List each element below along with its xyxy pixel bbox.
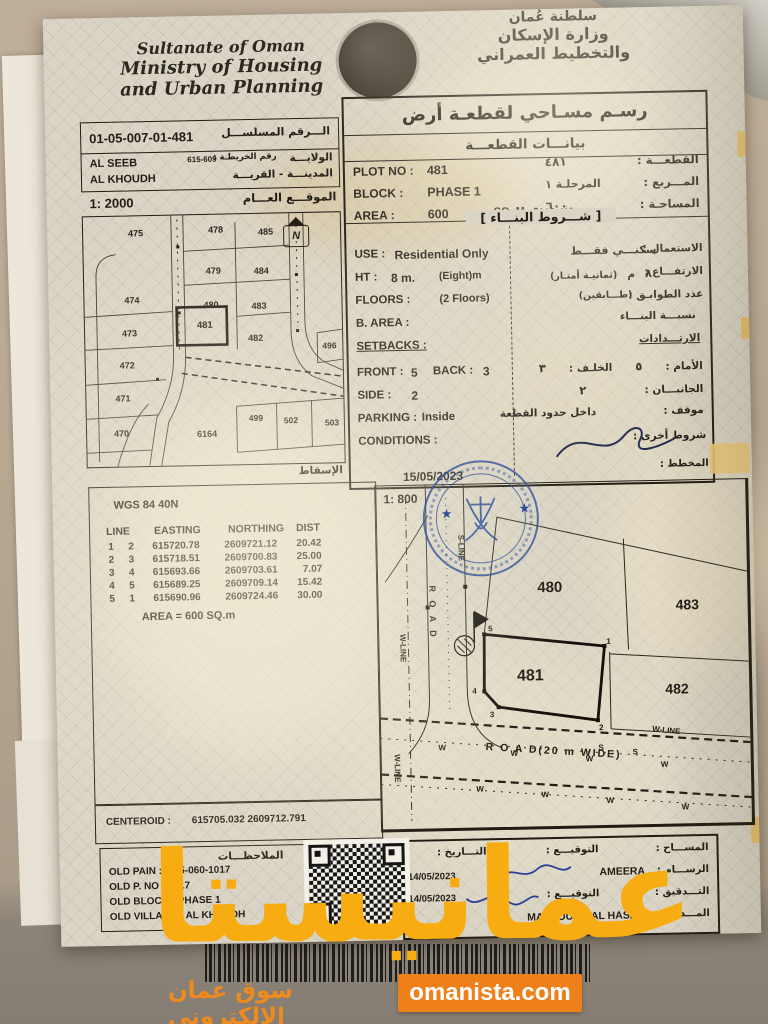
- map-plot-number: 6164: [197, 429, 217, 439]
- header-ar-line-3: والتخطيط العمراني: [458, 42, 648, 65]
- projection-label: الإسقاط: [297, 464, 343, 477]
- use-value: Residential Only: [394, 246, 488, 262]
- plot-no-value: 481: [427, 163, 448, 177]
- national-emblem-stamp: [338, 22, 418, 100]
- coords-col-easting: EASTING: [154, 524, 201, 537]
- back-label: BACK :: [433, 365, 473, 378]
- diagram-plot-482: 482: [665, 680, 689, 696]
- side-value: 2: [411, 389, 418, 403]
- plot-data-panel: رسـم مسـاحي لقطعـة أرض بيانـــات القطعــ…: [341, 90, 715, 490]
- map-plot-number: 479: [206, 266, 221, 276]
- coords-cell: 2: [109, 555, 115, 566]
- ar-height-note: (ثمانيـة أمتـار): [550, 270, 617, 282]
- coords-cell: 4: [109, 581, 115, 592]
- ar-side-value: ٢: [579, 383, 586, 397]
- corner-point-2: 2: [599, 723, 604, 732]
- map-plot-number: 502: [284, 415, 298, 425]
- side-label: SIDE :: [357, 389, 391, 402]
- block-label: BLOCK :: [353, 186, 403, 201]
- map-plot-number: 475: [128, 228, 143, 238]
- ar-floors-label: عدد الطوابـق :: [628, 288, 703, 302]
- omanista-site-badge: omanista.com: [398, 974, 582, 1012]
- w-marker: W: [606, 796, 614, 805]
- map-plot-number: 484: [254, 266, 269, 276]
- ar-block-label: المـــربع :: [643, 174, 699, 189]
- omanista-watermark-text: عمانيستا: [139, 833, 705, 959]
- photo-of-land-survey-document: Sultanate of Oman Ministry of Housing an…: [0, 0, 768, 1024]
- coords-col-line: LINE: [106, 525, 130, 537]
- coords-cell: 1: [108, 542, 114, 553]
- overview-map-1-2000: 475 478 485 479 484 474 480 483 473 481 …: [82, 211, 346, 468]
- w-line-label: W-LINE: [398, 634, 408, 662]
- parking-value: Inside: [422, 411, 455, 424]
- coords-cell: 5: [129, 580, 135, 591]
- map-plot-number: 470: [114, 428, 129, 438]
- ar-height-label: الارتفـــاع :: [644, 265, 703, 278]
- w-marker: W: [438, 743, 446, 752]
- height-note: (Eight)m: [439, 269, 482, 282]
- diagram-plot-480: 480: [537, 579, 562, 596]
- map-plot-number: 503: [325, 417, 339, 427]
- sticky-tab: [741, 317, 749, 339]
- sticky-tab: [737, 131, 746, 157]
- coords-col-dist: DIST: [296, 522, 320, 534]
- ar-block-value: المرحلـة ١: [545, 177, 601, 191]
- map-plot-number: 474: [124, 295, 139, 305]
- coords-cell: 615689.25: [153, 579, 200, 591]
- stamp-star-right: ★: [519, 501, 531, 516]
- floors-label: FLOORS :: [355, 294, 410, 307]
- diagram-plot-481-subject: 481: [517, 667, 544, 686]
- overview-map-scale: 1: 2000: [89, 195, 133, 211]
- map-plot-number: 482: [248, 333, 263, 343]
- ar-front-label: الأمام :: [665, 360, 703, 373]
- site-location-label: الموقـــع العـــام: [236, 189, 336, 205]
- map-plot-number-subject: 481: [197, 320, 213, 331]
- coords-cell: 2609700.83: [225, 552, 278, 564]
- approval-signature: [550, 414, 683, 469]
- coords-cell: 2: [128, 541, 134, 552]
- serial-number-value: 01-05-007-01-481: [89, 129, 193, 146]
- map-plot-number: 499: [249, 413, 263, 423]
- coords-cell: 15.42: [297, 577, 322, 589]
- parking-label: PARKING :: [358, 412, 417, 425]
- coords-cell: 615720.78: [152, 540, 199, 552]
- town-label: المدينـــة - القريـــة: [232, 167, 333, 181]
- ar-side-label: الجانبـــان :: [644, 383, 703, 396]
- town-value: AL KHOUDH: [90, 173, 156, 186]
- coords-col-northing: NORTHING: [228, 522, 284, 535]
- coords-area-total: AREA = 600 SQ.m: [142, 609, 236, 623]
- map-plot-number: 496: [322, 340, 336, 350]
- ministry-header-english: Sultanate of Oman Ministry of Housing an…: [98, 35, 344, 101]
- ar-setbacks-label: الارتـــدادات: [639, 332, 701, 345]
- ar-height-value: ٨: [645, 266, 652, 280]
- map-plot-number: 478: [208, 225, 223, 235]
- official-blue-stamp: ★ ★: [422, 459, 540, 577]
- coords-cell: 2609703.61: [225, 565, 278, 577]
- map-number-value: 615-609: [187, 155, 217, 165]
- coords-cell: 2609721.12: [224, 539, 277, 551]
- coords-cell: 2609709.14: [225, 578, 278, 590]
- ar-back-label: الخلـف :: [569, 362, 613, 375]
- front-label: FRONT :: [357, 366, 404, 379]
- coords-cell: 615693.66: [153, 566, 200, 578]
- header-line-3: and Urban Planning: [99, 75, 344, 101]
- map-number-label: رقم الخريطـة :: [213, 151, 277, 162]
- coords-cell: 20.42: [296, 538, 321, 550]
- serial-number-label: الـــرقم المسلســـل: [221, 124, 330, 139]
- map-plot-number: 480: [203, 300, 218, 310]
- map-plot-number: 473: [122, 328, 137, 338]
- area-label: AREA :: [354, 208, 395, 223]
- setbacks-label: SETBACKS :: [356, 339, 427, 352]
- coords-cell: 4: [129, 567, 135, 578]
- area-value: 600: [428, 207, 449, 221]
- north-letter: N: [292, 230, 300, 242]
- coords-cell: 2609724.46: [225, 591, 278, 603]
- north-arrow-icon: N: [283, 225, 309, 248]
- ar-area-label: المساحـة :: [640, 196, 700, 211]
- ar-use-value: سكنـــي فقـــط: [531, 243, 656, 259]
- coords-cell: 3: [129, 554, 135, 565]
- map-plot-number: 483: [251, 301, 266, 311]
- serial-location-box: 01-05-007-01-481 الـــرقم المسلســـل رقم…: [80, 117, 340, 192]
- coords-cell: 5: [109, 594, 115, 605]
- ar-back-value: ٣: [539, 361, 546, 375]
- coords-cell: 3: [109, 568, 115, 579]
- s-marker: S: [632, 747, 638, 756]
- coords-cell: 1: [129, 593, 135, 604]
- front-value: 5: [411, 366, 418, 380]
- stamp-star-left: ★: [441, 507, 453, 522]
- road-vertical-label: R O A D: [427, 585, 438, 640]
- w-marker: W: [541, 790, 549, 799]
- w-marker: W: [476, 784, 484, 793]
- w-marker: W: [661, 760, 669, 769]
- corner-point-1: 1: [606, 637, 611, 646]
- wilaya-label: الولايـــة: [289, 151, 332, 164]
- back-value: 3: [483, 364, 490, 378]
- ar-front-value: ٥: [635, 359, 642, 373]
- coords-cell: 7.07: [303, 564, 323, 575]
- map-plot-number: 471: [115, 393, 130, 403]
- document-title: رسـم مسـاحي لقطعـة أرض: [402, 100, 648, 126]
- coords-cell: 25.00: [296, 551, 321, 563]
- floors-value: (2 Floors): [439, 292, 489, 305]
- coords-cell: 615718.51: [153, 553, 200, 565]
- ministry-header-arabic: سلطنة عُمان وزارة الإسكان والتخطيط العمر…: [458, 7, 649, 65]
- ar-floors-note: (طـــابقين): [532, 289, 632, 302]
- wilaya-value: AL SEEB: [90, 157, 138, 170]
- sticky-tab-plan: [709, 443, 750, 474]
- conditions-label: CONDITIONS :: [358, 434, 437, 448]
- coordinates-panel: WGS 84 40N LINE EASTING NORTHING DIST 1 …: [88, 482, 382, 807]
- w-marker: W: [682, 802, 690, 811]
- ar-built-area-label: نسبـــة البنـــاء: [620, 309, 696, 323]
- plot-no-label: PLOT NO :: [353, 164, 414, 179]
- omanista-tagline: سوق عمان الإلكتروني: [168, 978, 390, 1024]
- corner-point-5: 5: [488, 624, 493, 633]
- building-conditions-header: [ شـــروط البنـــاء ]: [466, 208, 616, 226]
- plot-data-subtitle: بيانـــات القطعـــة: [465, 135, 585, 153]
- block-value: PHASE 1: [427, 184, 481, 199]
- map-plot-number: 485: [258, 227, 273, 237]
- built-area-label: B. AREA :: [356, 317, 410, 330]
- use-label: USE :: [354, 248, 385, 261]
- coords-row: 1 2 615720.78 2609721.12 20.42: [90, 537, 376, 543]
- diagram-plot-483: 483: [675, 596, 699, 612]
- ar-height-unit: م: [627, 268, 635, 280]
- w-line-label: W-LINE: [393, 754, 403, 782]
- column-divider-dashed: [509, 226, 515, 476]
- coords-cell: 30.00: [297, 590, 322, 602]
- ar-plot-label: القطعـــة :: [637, 152, 699, 167]
- stamp-khanjar-emblem: [422, 459, 540, 577]
- corner-point-3: 3: [490, 710, 495, 719]
- corner-point-4: 4: [472, 687, 477, 696]
- datum-label: WGS 84 40N: [113, 498, 178, 511]
- coords-cell: 615690.96: [153, 592, 200, 604]
- survey-document: Sultanate of Oman Ministry of Housing an…: [43, 5, 761, 947]
- height-value: 8 m.: [391, 271, 415, 285]
- ar-plot-value: ٤٨١: [545, 155, 567, 169]
- map-plot-number: 472: [120, 360, 135, 370]
- height-label: HT :: [355, 271, 378, 283]
